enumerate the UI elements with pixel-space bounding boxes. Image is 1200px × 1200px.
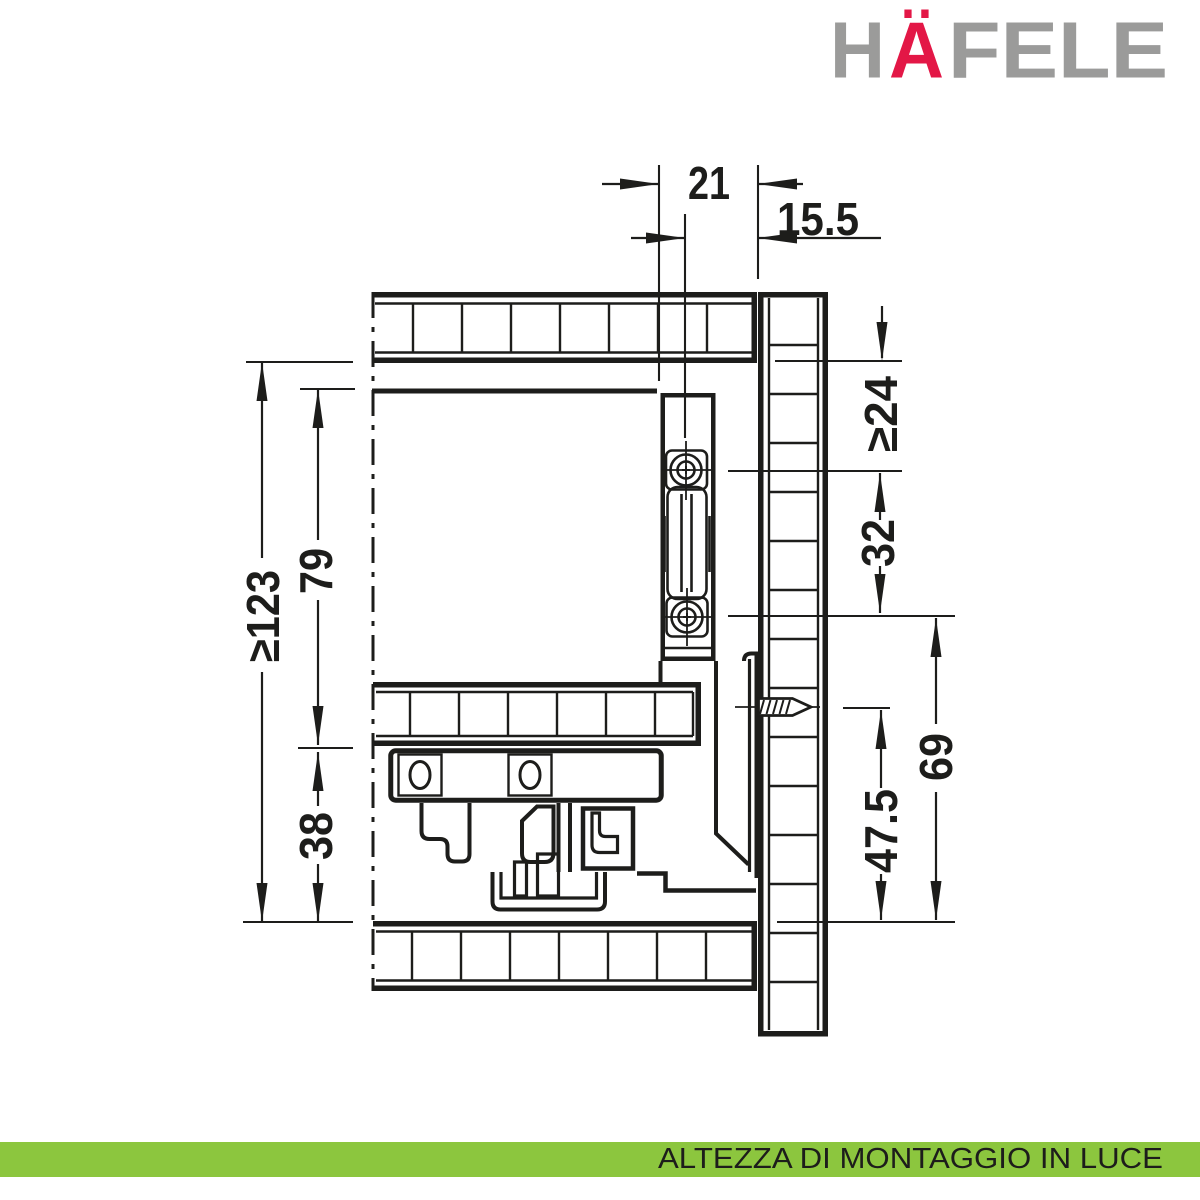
back-panel-chipboard-pattern bbox=[769, 298, 818, 1030]
hafele-logo: H Ä FELE bbox=[830, 6, 1168, 95]
cabinet-bottom-panel bbox=[373, 924, 754, 989]
dim-top-clearance: ≥24 bbox=[855, 306, 907, 452]
footer-bar: ALTEZZA DI MONTAGGIO IN LUCE bbox=[0, 1142, 1200, 1177]
rail-hole-right bbox=[520, 762, 540, 789]
logo-letter-a-umlaut: Ä bbox=[889, 6, 944, 95]
wall-screw bbox=[735, 699, 820, 716]
dim-label-21: 21 bbox=[688, 157, 730, 209]
dim-label-47-5: 47.5 bbox=[855, 789, 907, 873]
dim-rear-hook-height: 69 bbox=[910, 618, 962, 920]
dim-side-height: 79 bbox=[290, 389, 342, 745]
dim-label-79: 79 bbox=[290, 548, 342, 594]
dim-top-screw-offset: 15.5 bbox=[631, 193, 881, 245]
drawer-bottom-outline bbox=[373, 685, 698, 744]
drawer-bottom-chipboard-pattern bbox=[376, 692, 693, 736]
dim-hook-screw-height: 47.5 bbox=[855, 710, 907, 920]
bottom-panel-outline bbox=[373, 924, 754, 989]
technical-drawing: H Ä FELE bbox=[0, 0, 1200, 1200]
dim-clear-height: ≥123 bbox=[237, 362, 289, 922]
dim-screw-spacing: 32 bbox=[852, 473, 904, 613]
logo-letters-fele: FELE bbox=[948, 6, 1168, 95]
drawer-bottom-panel bbox=[373, 685, 698, 744]
dimension-arrows bbox=[877, 322, 888, 361]
footer-label: ALTEZZA DI MONTAGGIO IN LUCE bbox=[658, 1143, 1163, 1175]
dim-label-32: 32 bbox=[852, 519, 904, 567]
dim-label-15-5: 15.5 bbox=[777, 193, 859, 245]
cabinet-top-panel bbox=[372, 295, 754, 361]
rear-mounting-bracket bbox=[661, 395, 714, 659]
page: H Ä FELE bbox=[0, 0, 1200, 1200]
logo-letter-h: H bbox=[830, 6, 885, 95]
dim-bottom-height: 38 bbox=[290, 752, 342, 922]
bracket-slot-detail bbox=[665, 494, 710, 592]
top-panel-chipboard-pattern bbox=[375, 304, 752, 353]
dimension-arrows bbox=[646, 233, 797, 244]
dim-top-width: 21 bbox=[602, 157, 803, 209]
dim-label-69: 69 bbox=[910, 733, 962, 781]
dim-label-24: ≥24 bbox=[855, 376, 907, 452]
rail-hole-left bbox=[410, 762, 430, 789]
drawer-frame-rail bbox=[391, 751, 662, 801]
dim-label-123: ≥123 bbox=[237, 570, 289, 662]
bracket-slot bbox=[668, 487, 707, 599]
bottom-panel-chipboard-pattern bbox=[376, 932, 752, 981]
dim-label-38: 38 bbox=[290, 812, 342, 860]
